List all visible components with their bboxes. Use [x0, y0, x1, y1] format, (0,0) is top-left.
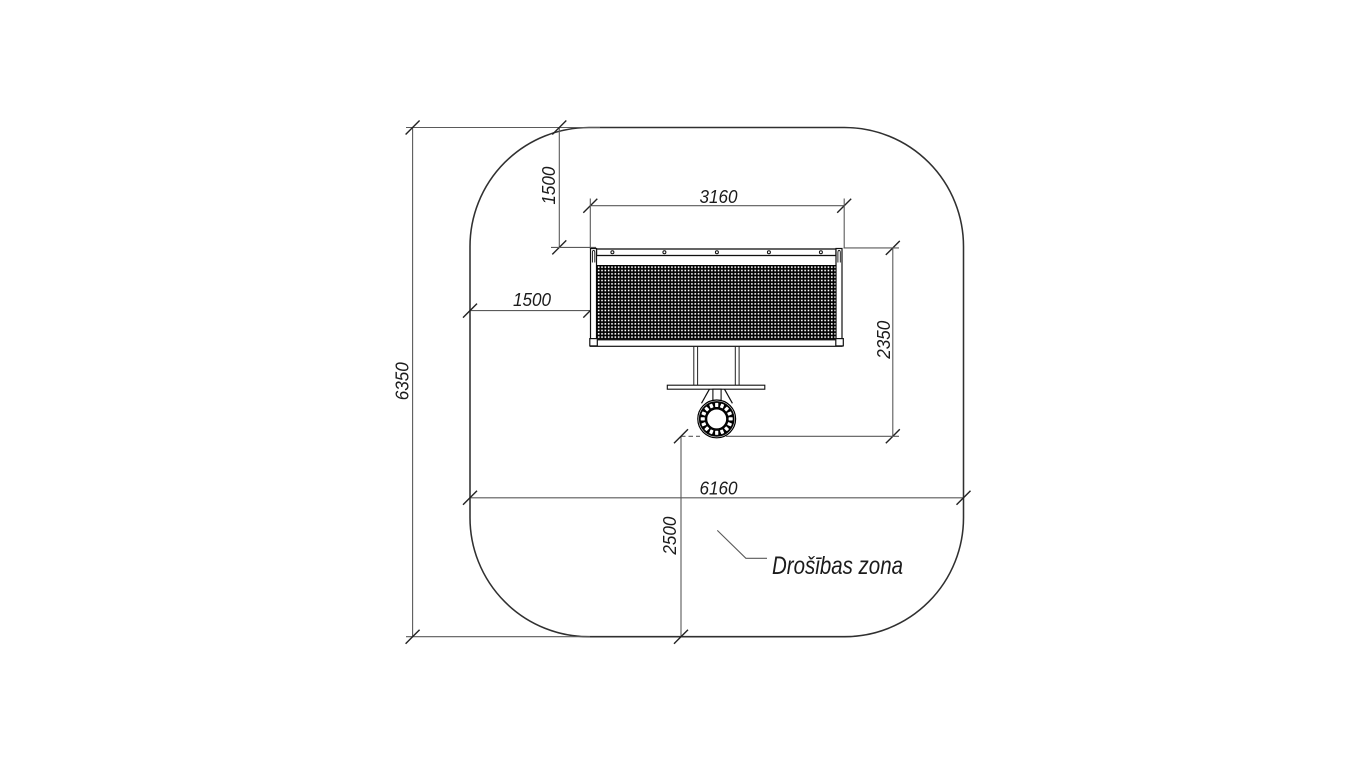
svg-text:6160: 6160	[700, 479, 738, 499]
svg-text:1500: 1500	[539, 167, 559, 205]
svg-text:6350: 6350	[393, 362, 413, 400]
svg-text:3160: 3160	[700, 187, 738, 207]
svg-text:2350: 2350	[874, 321, 894, 360]
svg-text:Drošības zona: Drošības zona	[772, 552, 903, 580]
svg-text:2500: 2500	[660, 517, 680, 556]
svg-text:1500: 1500	[513, 290, 551, 310]
